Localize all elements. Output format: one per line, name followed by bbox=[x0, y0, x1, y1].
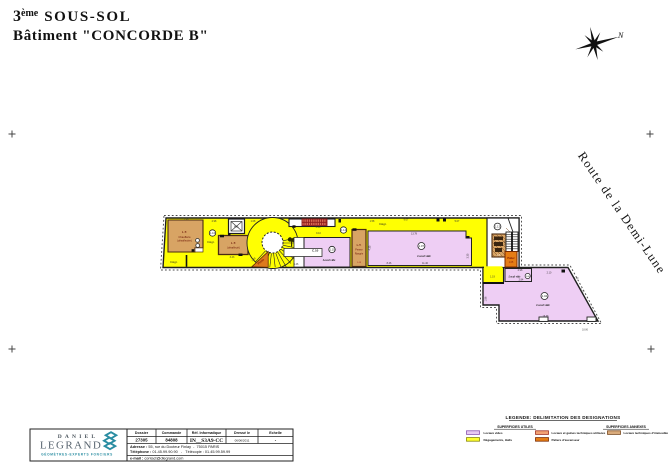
svg-text:Adresse : 55, rue du Docteur F: Adresse : 55, rue du Docteur Finlay - 75… bbox=[130, 445, 220, 449]
svg-text:SUPERFICIES ANNEXES: SUPERFICIES ANNEXES bbox=[606, 425, 647, 429]
svg-text:11.40: 11.40 bbox=[422, 262, 428, 265]
svg-text:Locaux techniques d'immeuble: Locaux techniques d'immeuble bbox=[624, 431, 669, 435]
svg-text:IN__S3A9-CC: IN__S3A9-CC bbox=[190, 438, 223, 444]
svg-text:Palier: Palier bbox=[507, 256, 514, 260]
svg-text:1.86: 1.86 bbox=[485, 296, 488, 301]
svg-text:13.78: 13.78 bbox=[411, 233, 418, 236]
svg-text:1.08: 1.08 bbox=[251, 220, 256, 223]
svg-text:C.10: C.10 bbox=[312, 249, 319, 253]
svg-text:Local vide: Local vide bbox=[416, 254, 431, 258]
svg-text:Presse: Presse bbox=[355, 249, 363, 252]
svg-text:Rangée: Rangée bbox=[355, 253, 364, 256]
svg-text:Echelle: Echelle bbox=[269, 431, 282, 435]
svg-text:5.07: 5.07 bbox=[455, 220, 460, 223]
svg-text:L.T.: L.T. bbox=[231, 241, 236, 245]
svg-text:9.10: 9.10 bbox=[316, 232, 321, 235]
svg-text:e-mail : contact@dlegrand.com: e-mail : contact@dlegrand.com bbox=[130, 456, 183, 460]
svg-text:6.46: 6.46 bbox=[294, 263, 299, 266]
svg-text:(désaffecté): (désaffecté) bbox=[227, 247, 240, 250]
svg-text:Paliers d'ascenseur: Paliers d'ascenseur bbox=[552, 438, 581, 442]
svg-text:1.16: 1.16 bbox=[210, 231, 216, 235]
svg-text:Bâtiment "CONCORDE B": Bâtiment "CONCORDE B" bbox=[13, 28, 209, 44]
svg-text:Dressé le: Dressé le bbox=[234, 431, 250, 435]
svg-text:LEGRAND: LEGRAND bbox=[40, 440, 102, 452]
svg-text:9.07: 9.07 bbox=[404, 219, 409, 222]
svg-text:Dossier: Dossier bbox=[135, 431, 149, 435]
svg-text:Téléphone : 01.45.99.90.90 -: Téléphone : 01.45.99.90.90 - Télécopie :… bbox=[130, 450, 230, 454]
svg-text:Dégt.: Dégt. bbox=[379, 222, 386, 226]
svg-text:06/06/2011: 06/06/2011 bbox=[235, 438, 250, 442]
svg-text:1.58: 1.58 bbox=[370, 220, 375, 223]
svg-text:5.40: 5.40 bbox=[316, 226, 321, 229]
svg-text:1.05: 1.05 bbox=[509, 262, 514, 264]
svg-text:Locaux et gaines techniques ut: Locaux et gaines techniques utilisées bbox=[552, 431, 606, 435]
svg-text:Chaufferie: Chaufferie bbox=[178, 235, 191, 239]
svg-text:1.04: 1.04 bbox=[542, 294, 548, 298]
svg-text:LEGENDE: DELIMITATION DES DESI: LEGENDE: DELIMITATION DES DESIGNATIONS bbox=[505, 415, 620, 420]
svg-text:1.07: 1.07 bbox=[419, 244, 425, 248]
svg-text:Dégagements, Halls: Dégagements, Halls bbox=[484, 438, 513, 442]
svg-text:3.35: 3.35 bbox=[467, 253, 470, 258]
svg-text:18.86: 18.86 bbox=[582, 329, 589, 332]
svg-text:Local vide: Local vide bbox=[535, 303, 550, 307]
svg-text:2.98: 2.98 bbox=[184, 218, 189, 221]
svg-text:2.10: 2.10 bbox=[547, 272, 552, 275]
svg-text:1.13: 1.13 bbox=[495, 225, 501, 229]
svg-text:L.T.: L.T. bbox=[357, 243, 362, 247]
svg-text:27305: 27305 bbox=[135, 438, 148, 443]
svg-text:2.20: 2.20 bbox=[504, 240, 507, 245]
svg-text:9.10: 9.10 bbox=[574, 277, 579, 280]
svg-text:SUPERFICIES UTILES: SUPERFICIES UTILES bbox=[497, 425, 533, 429]
svg-text:Réf. Informatique: Réf. Informatique bbox=[192, 431, 222, 435]
svg-text:Commande: Commande bbox=[162, 431, 182, 435]
svg-text:3.43: 3.43 bbox=[230, 256, 235, 259]
svg-text:(désaffectée): (désaffectée) bbox=[177, 240, 192, 243]
svg-text:GÉOMÈTRES-EXPERTS FONCIERS: GÉOMÈTRES-EXPERTS FONCIERS bbox=[41, 452, 113, 457]
svg-text:1.14: 1.14 bbox=[341, 228, 347, 232]
svg-text:2.84: 2.84 bbox=[519, 279, 524, 282]
svg-text:4.35: 4.35 bbox=[369, 245, 372, 250]
svg-text:Dégt.: Dégt. bbox=[170, 260, 177, 264]
svg-text:2.98: 2.98 bbox=[518, 269, 523, 272]
svg-text:Dégt.: Dégt. bbox=[207, 240, 214, 244]
svg-text:2.98: 2.98 bbox=[212, 220, 217, 223]
svg-text:84808: 84808 bbox=[165, 438, 178, 443]
svg-text:1.19: 1.19 bbox=[490, 276, 495, 279]
svg-text:N: N bbox=[617, 31, 624, 40]
svg-text:Local vide: Local vide bbox=[322, 258, 336, 262]
svg-text:1.10: 1.10 bbox=[329, 248, 335, 252]
svg-text:16.06: 16.06 bbox=[543, 315, 550, 318]
svg-text:8.46: 8.46 bbox=[387, 262, 392, 265]
svg-text:Asc.: Asc. bbox=[234, 225, 239, 229]
svg-text:Locaux vides: Locaux vides bbox=[484, 431, 503, 435]
svg-text:L.T.: L.T. bbox=[497, 254, 501, 257]
svg-text:L.T.: L.T. bbox=[182, 230, 187, 234]
